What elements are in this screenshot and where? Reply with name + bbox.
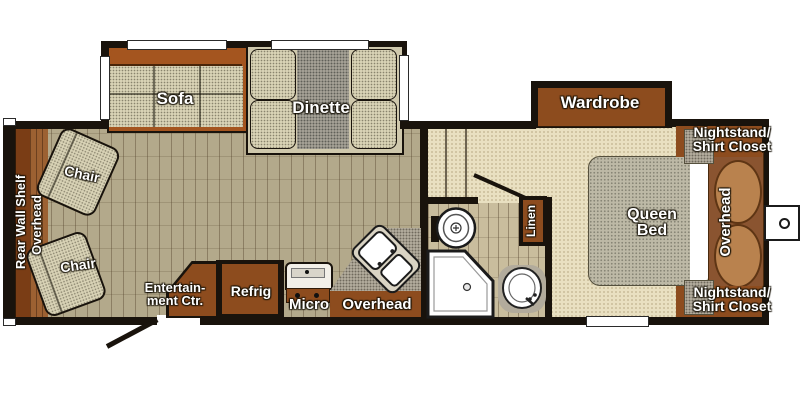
range-cooktop (285, 262, 333, 290)
corner-shower (428, 251, 493, 317)
hitch-pin (779, 218, 790, 229)
dinette-label: Dinette (281, 99, 361, 116)
bottom-wall (3, 317, 769, 325)
entertainment-label-line2: ment Ctr. (130, 294, 220, 307)
wall-cap-window (3, 318, 16, 326)
nightstand-top-line2: Shirt Closet (677, 139, 787, 153)
wall-cap-window (3, 118, 16, 126)
step-edge-1 (445, 128, 447, 198)
sofa-label: Sofa (140, 90, 210, 107)
entertainment-label-line1: Entertain- (130, 281, 220, 294)
step-edge-2 (465, 128, 467, 200)
bed-overhead-label: Overhead (718, 162, 736, 282)
slide-right-window (399, 55, 409, 121)
faucet-dot (528, 297, 532, 301)
faucet-dot (533, 293, 537, 297)
range-knob (305, 270, 309, 274)
top-wall-left-segment (3, 121, 107, 129)
nightstand-top-label: Nightstand/ Shirt Closet (677, 125, 787, 154)
linen-label: Linen (525, 171, 543, 271)
nightstand-bottom-line2: Shirt Closet (677, 299, 787, 313)
hitch-pin-box (764, 205, 800, 241)
wardrobe-label: Wardrobe (540, 94, 660, 111)
dinette-slide-window (271, 40, 369, 50)
kitchen-overhead-label: Overhead (332, 297, 422, 312)
entertainment-center-label: Entertain- ment Ctr. (130, 281, 220, 308)
shower-drain (464, 284, 471, 291)
rear-overhead-label: Overhead (30, 165, 48, 285)
fifth-wheel-floorplan: Sofa Dinette Wardrobe Chair Chair Rear W… (0, 0, 800, 400)
dinette-bench-cushion (250, 49, 296, 100)
micro-label: Micro (284, 297, 334, 312)
slide-left-window (100, 56, 110, 120)
queen-bed-label-line2: Bed (612, 223, 692, 239)
sofa-back (110, 49, 242, 66)
dinette-bench-cushion (351, 49, 397, 100)
queen-bed-label: Queen Bed (612, 207, 692, 240)
sofa-slide-window (127, 40, 227, 50)
queen-bed-label-line1: Queen (612, 207, 692, 223)
refrig-label: Refrig (221, 284, 281, 298)
bedroom-window (586, 316, 649, 327)
nightstand-bottom-label: Nightstand/ Shirt Closet (677, 285, 787, 314)
